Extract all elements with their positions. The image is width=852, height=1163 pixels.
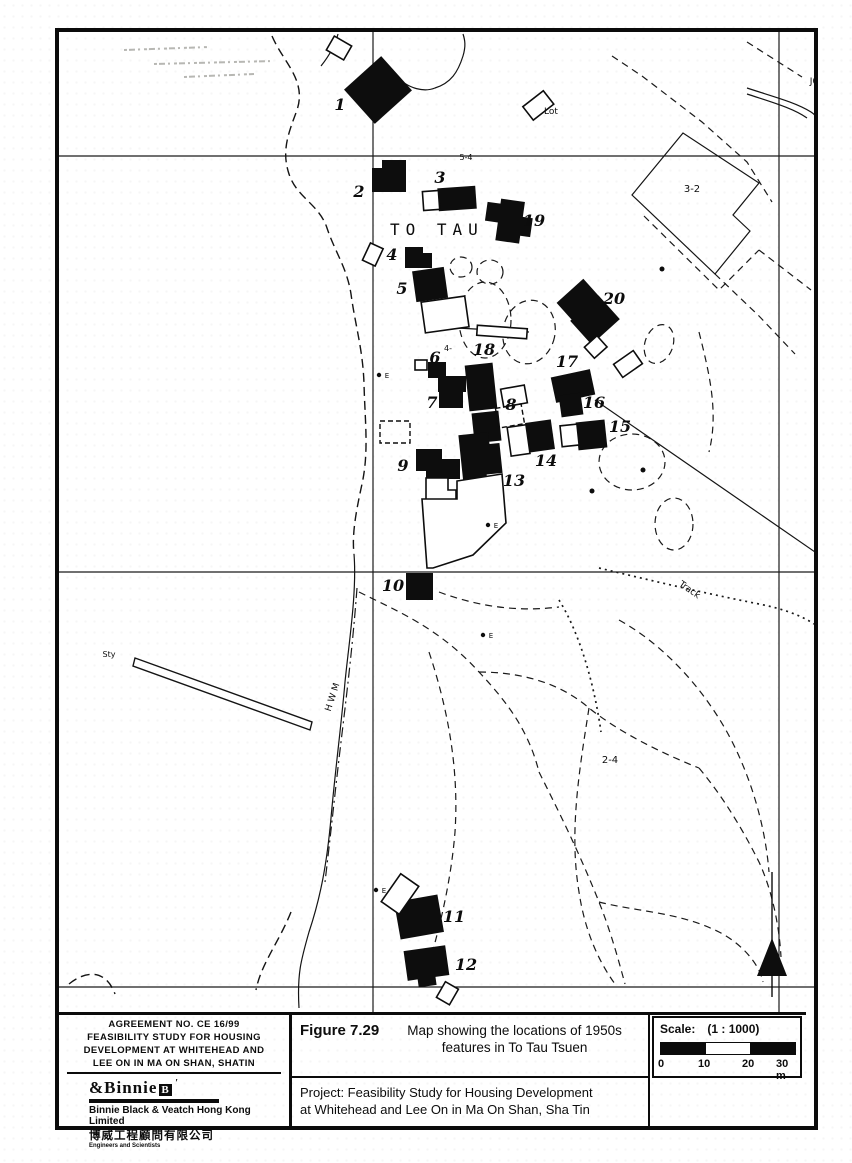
feature-number-label: 3	[434, 168, 445, 187]
scale-tick: 10	[698, 1058, 710, 1070]
scale-bar-segment	[705, 1043, 751, 1054]
feature-number-label: 18	[473, 340, 495, 359]
agreement-line: AGREEMENT NO. CE 16/99	[59, 1018, 289, 1031]
agreement-line: FEASIBILITY STUDY FOR HOUSING	[59, 1031, 289, 1044]
map-text-label: J0	[809, 77, 814, 87]
figure-number: Figure 7.29	[300, 1022, 379, 1039]
logo-tick-mark: ′	[172, 1078, 179, 1089]
company-name: Binnie Black & Veatch Hong Kong Limited	[89, 1105, 289, 1127]
titleblock-left-cell: AGREEMENT NO. CE 16/99 FEASIBILITY STUDY…	[59, 1014, 289, 1126]
map-text-label: Sty	[103, 650, 116, 659]
feature-number-label: 2	[352, 182, 364, 201]
feature-number-label: 17	[556, 352, 578, 371]
scale-tick: 30 m	[776, 1058, 800, 1082]
feature-number-label: 8	[504, 395, 516, 414]
feature-number-label: 5	[396, 279, 407, 298]
feature-number-label: 19	[523, 211, 545, 230]
feature-number-label: 12	[455, 955, 477, 974]
scale-bar	[660, 1042, 796, 1055]
feature-number-label: 16	[583, 393, 605, 412]
pier	[133, 658, 312, 730]
map-text-label: 4-	[444, 344, 452, 353]
feature-number-label: 9	[397, 456, 408, 475]
scan-smudges	[124, 47, 274, 77]
logo-badge-icon: B	[159, 1084, 171, 1096]
scale-cell: Scale: (1 : 1000) 0 10 20 30 m	[652, 1016, 802, 1078]
figure-caption: Map showing the locations of 1950s featu…	[389, 1022, 640, 1056]
agreement-line: DEVELOPMENT AT WHITEHEAD AND	[59, 1044, 289, 1057]
project-line: at Whitehead and Lee On in Ma On Shan, S…	[300, 1101, 646, 1118]
feature-number-label: 1	[334, 95, 345, 114]
feature-number-label: 7	[426, 393, 437, 412]
feature-number-label: 10	[382, 576, 404, 595]
feature-number-label: 13	[503, 471, 525, 490]
feature-number-label: 6	[429, 348, 440, 367]
village-name-label: TO TAU	[390, 220, 484, 239]
logo-underline	[89, 1099, 219, 1103]
project-cell: Project: Feasibility Study for Housing D…	[292, 1078, 646, 1126]
track-lines	[559, 42, 814, 732]
scale-tick: 0	[658, 1058, 664, 1070]
feature-number-label: 11	[443, 907, 465, 926]
scale-bar-segment	[751, 1043, 795, 1054]
figure-cell: Figure 7.29 Map showing the locations of…	[292, 1014, 646, 1076]
map-canvas: TO TAU 1234567891011121314151617181920 L…	[59, 32, 814, 1012]
binnie-logo: &BinnieB ′	[89, 1078, 289, 1098]
field-boundaries	[359, 320, 781, 984]
feature-number-label: 4	[386, 245, 397, 264]
project-line: Project: Feasibility Study for Housing D…	[300, 1084, 646, 1101]
map-text-label: 2-4	[602, 755, 618, 766]
company-block: &BinnieB ′ Binnie Black & Veatch Hong Ko…	[89, 1078, 289, 1149]
map-text-label: E	[489, 632, 493, 640]
company-tagline: Engineers and Scientists	[89, 1143, 289, 1149]
scale-tick: 20	[742, 1058, 754, 1070]
feature-number-label: 15	[609, 417, 631, 436]
map-text-label: Lot	[544, 107, 558, 117]
agreement-text: AGREEMENT NO. CE 16/99 FEASIBILITY STUDY…	[59, 1018, 289, 1070]
agreement-line: LEE ON IN MA ON SHAN, SHATIN	[59, 1057, 289, 1070]
map-text-label: 5-4	[459, 153, 472, 162]
scanned-map-sheet: TO TAU 1234567891011121314151617181920 L…	[0, 0, 852, 1163]
scale-bar-segment	[661, 1043, 705, 1054]
feature-number-label: 14	[535, 451, 557, 470]
scale-label: Scale:	[660, 1022, 695, 1036]
map-text-label: H W M	[324, 682, 343, 713]
company-name-chinese: 博威工程顧問有限公司	[89, 1127, 289, 1143]
titleblock-right-divider	[648, 1012, 650, 1126]
map-text-label: 3-2	[684, 184, 700, 195]
map-text-label: E	[494, 522, 498, 530]
map-text-label: E	[382, 887, 386, 895]
scale-ratio: (1 : 1000)	[707, 1022, 759, 1036]
north-arrow-icon	[757, 872, 787, 997]
feature-number-label: 20	[602, 289, 625, 308]
cell-divider-rule	[67, 1072, 281, 1074]
map-text-label: E	[385, 372, 389, 380]
map-text-label: Track	[676, 579, 702, 602]
